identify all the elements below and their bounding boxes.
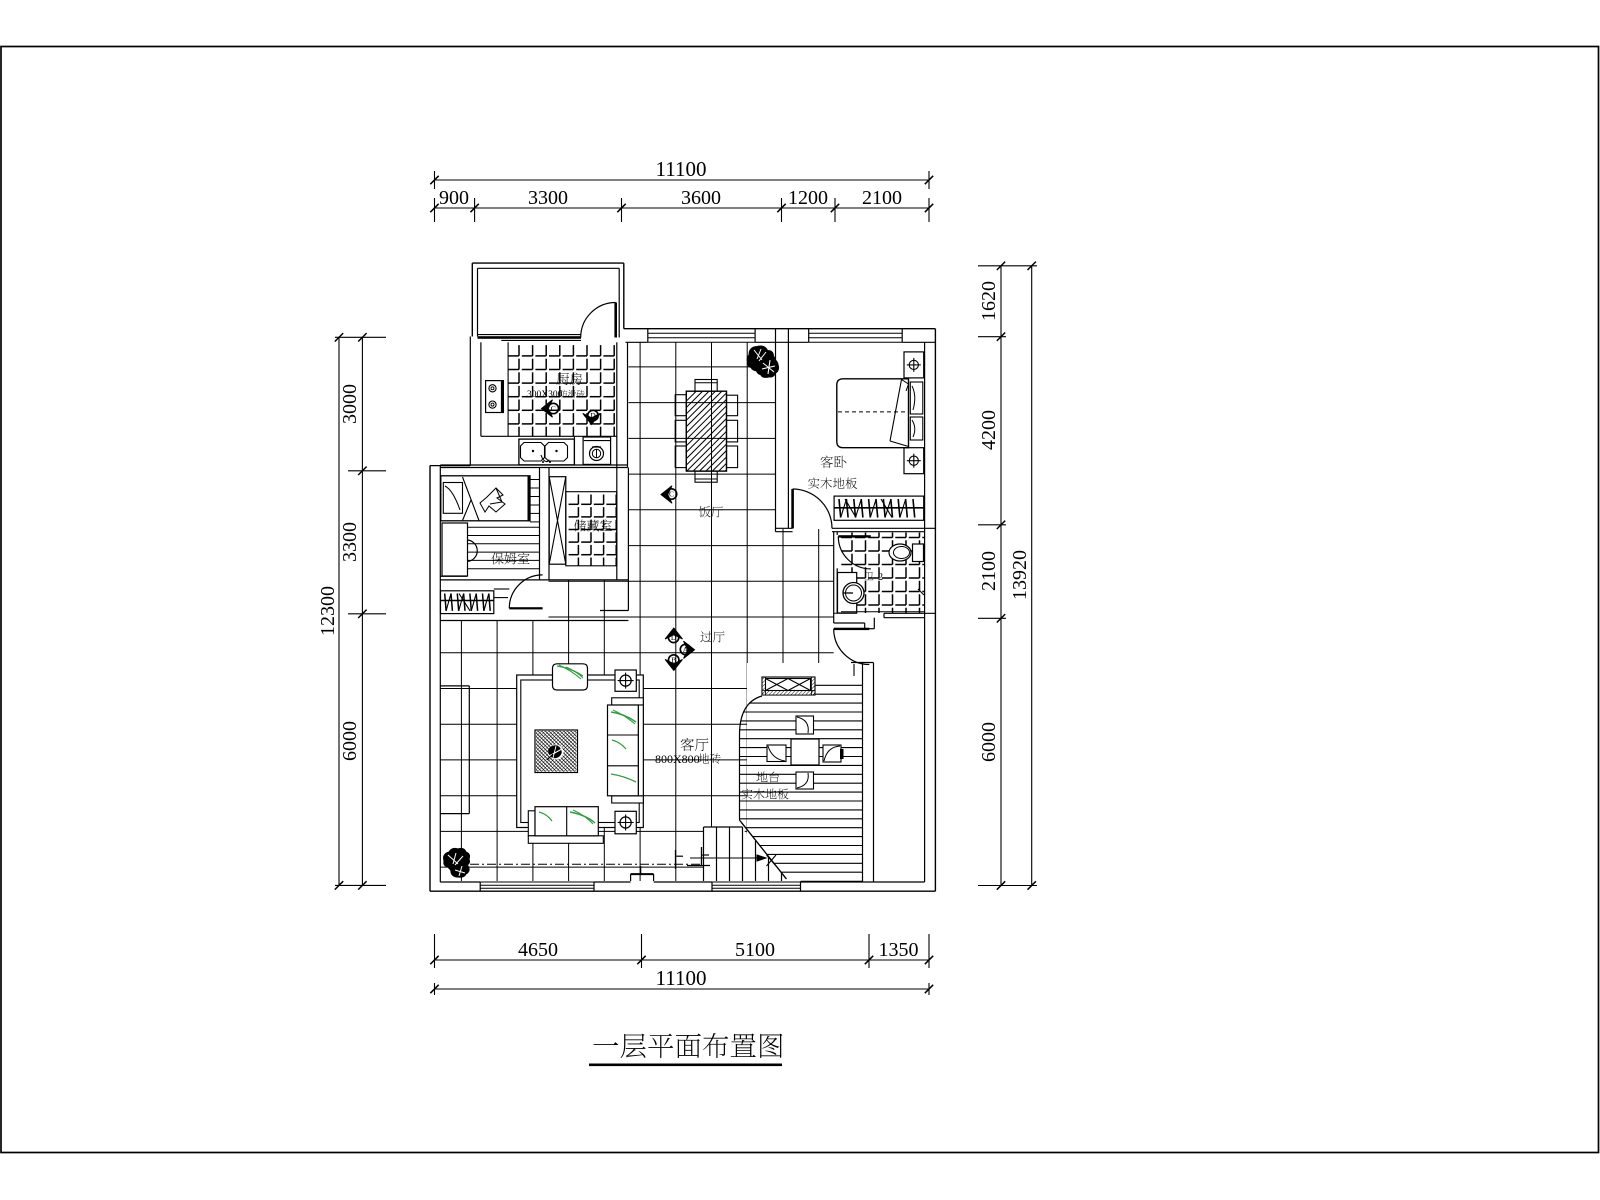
svg-text:D: D bbox=[590, 411, 596, 420]
svg-text:A: A bbox=[683, 645, 689, 654]
svg-text:300X300: 300X300 bbox=[527, 390, 563, 400]
svg-text:2100: 2100 bbox=[978, 551, 1000, 591]
svg-text:4200: 4200 bbox=[978, 410, 1000, 450]
svg-text:1620: 1620 bbox=[978, 281, 1000, 321]
svg-text:11100: 11100 bbox=[656, 966, 707, 990]
svg-text:3600: 3600 bbox=[681, 187, 721, 209]
svg-text:12300: 12300 bbox=[317, 586, 339, 636]
svg-text:6000: 6000 bbox=[978, 722, 1000, 762]
svg-text:800X800: 800X800 bbox=[655, 752, 700, 766]
svg-text:1350: 1350 bbox=[879, 939, 919, 961]
svg-text:5100: 5100 bbox=[735, 939, 775, 961]
svg-text:C: C bbox=[669, 490, 674, 499]
svg-text:4650: 4650 bbox=[518, 939, 558, 961]
svg-text:B: B bbox=[671, 656, 676, 665]
svg-text:900: 900 bbox=[439, 187, 469, 209]
svg-text:D: D bbox=[671, 633, 677, 642]
svg-text:3300: 3300 bbox=[528, 187, 568, 209]
svg-text:C: C bbox=[551, 404, 556, 413]
svg-text:11100: 11100 bbox=[656, 157, 707, 181]
svg-text:6000: 6000 bbox=[339, 721, 361, 761]
svg-text:2100: 2100 bbox=[862, 187, 902, 209]
svg-text:3300: 3300 bbox=[339, 522, 361, 562]
svg-text:3000: 3000 bbox=[339, 384, 361, 424]
svg-text:13920: 13920 bbox=[1009, 550, 1031, 600]
svg-text:2: 2 bbox=[878, 572, 883, 583]
svg-text:1200: 1200 bbox=[788, 187, 828, 209]
